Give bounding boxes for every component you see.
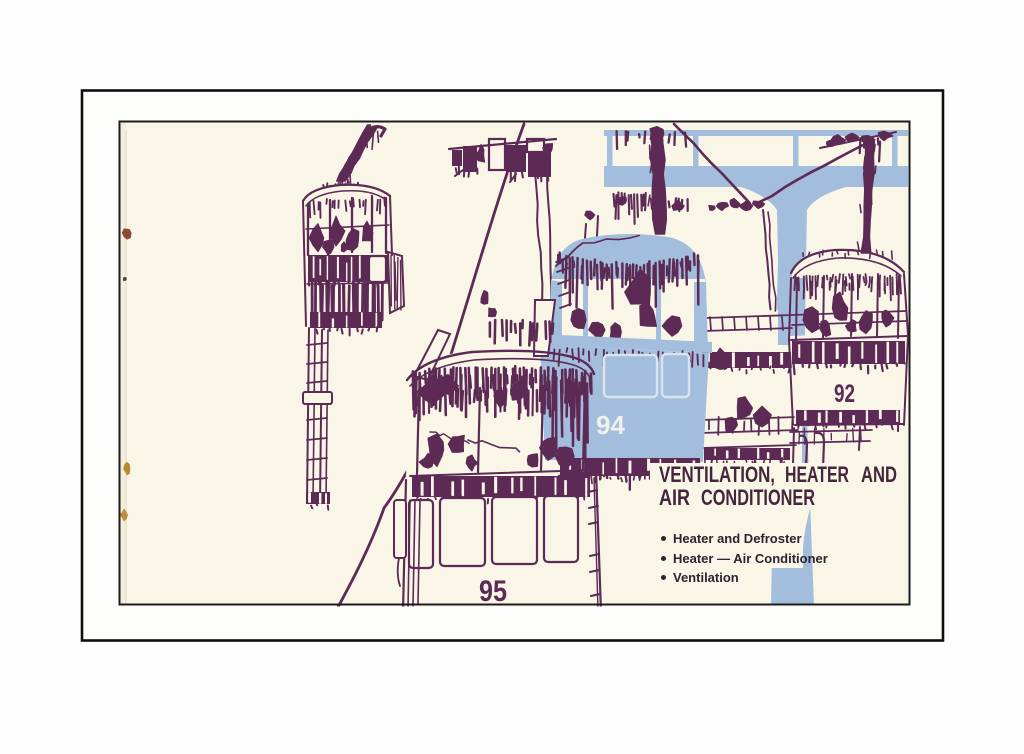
svg-text:Ventilation: Ventilation — [673, 570, 739, 585]
svg-text:95: 95 — [479, 575, 507, 608]
svg-text:Heater — Air Conditioner: Heater — Air Conditioner — [673, 551, 828, 566]
svg-text:Heater and Defroster: Heater and Defroster — [673, 531, 802, 546]
svg-text:94: 94 — [596, 410, 626, 440]
svg-text:92: 92 — [834, 380, 855, 408]
svg-text:AIRCONDITIONER: AIRCONDITIONER — [659, 485, 815, 510]
